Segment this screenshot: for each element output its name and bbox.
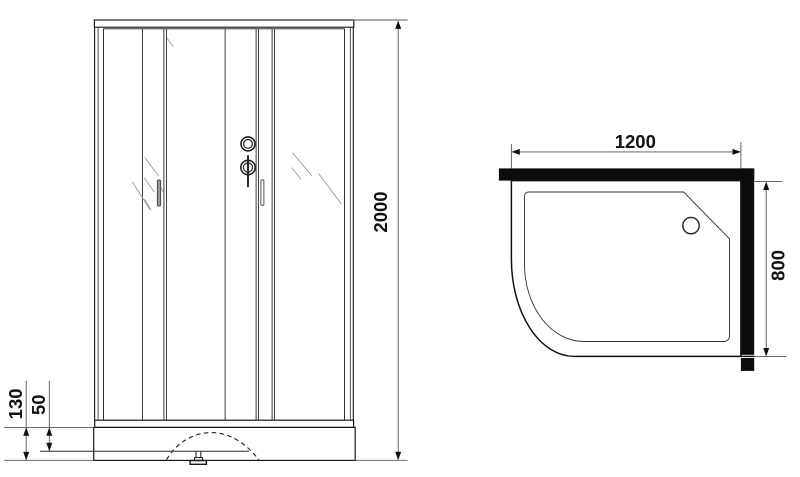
svg-text:2000: 2000: [370, 191, 391, 232]
svg-text:800: 800: [767, 250, 788, 281]
svg-text:130: 130: [5, 388, 26, 419]
svg-text:50: 50: [28, 394, 49, 415]
svg-text:1200: 1200: [615, 131, 656, 152]
